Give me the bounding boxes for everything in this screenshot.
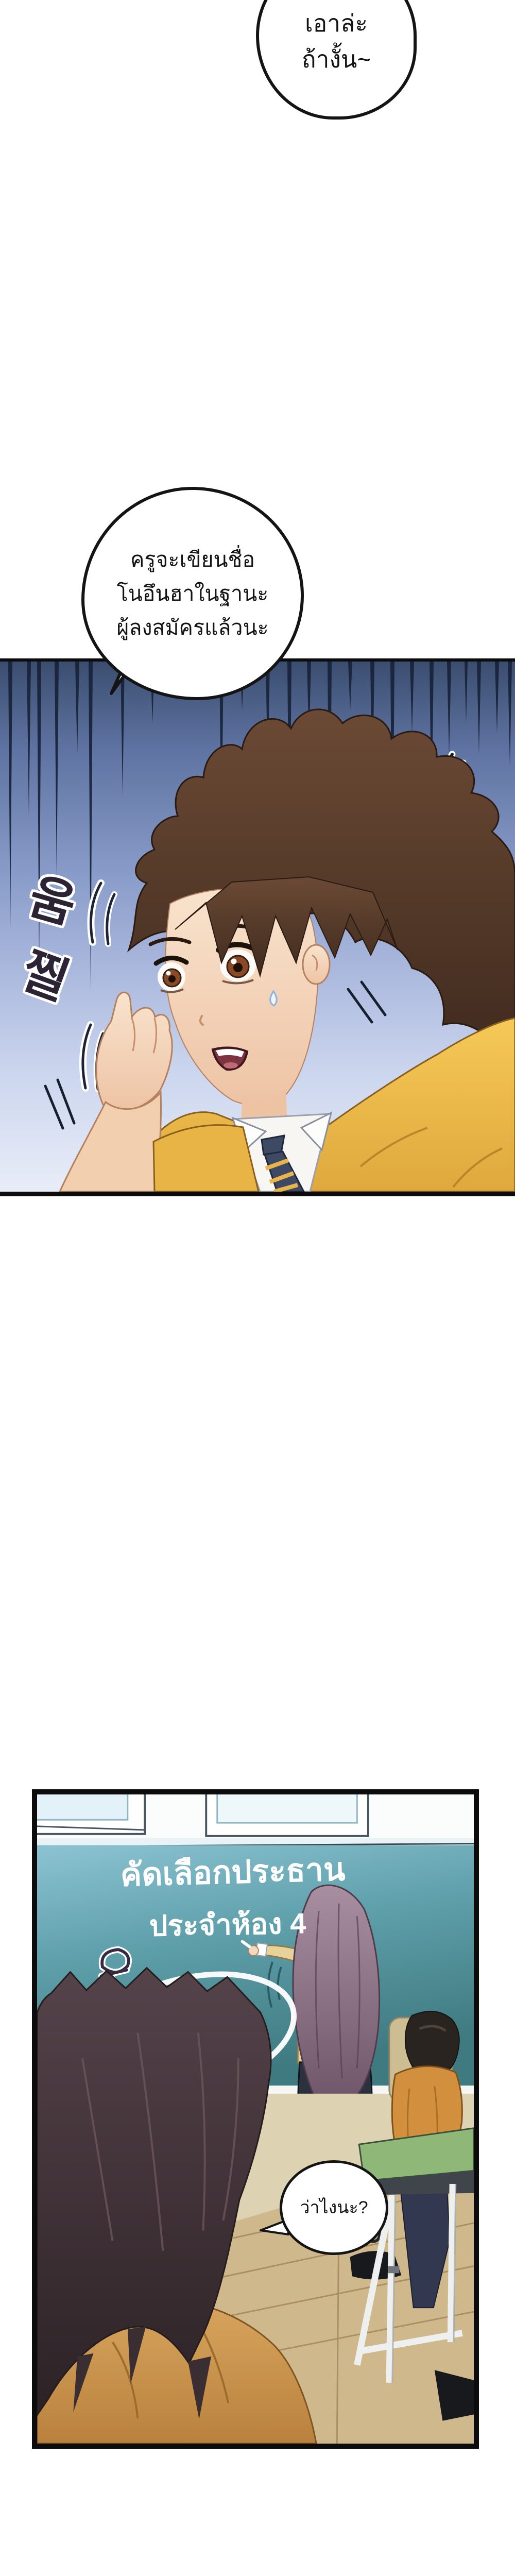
speech-bubble-reaction: ว่าไงนะ? [280, 2160, 388, 2255]
speech-bubble-teacher: ครูจะเขียนชื่อ โนอึนฮาในฐานะ ผู้ลงสมัครแ… [81, 487, 304, 700]
leg-joint [388, 2266, 399, 2273]
speech-text: ผู้ลงสมัครแล้วนะ [84, 611, 301, 645]
boy-forearm [60, 1092, 161, 1192]
boy-character [60, 709, 515, 1192]
speech-bubble-top: เอาล่ะ ถ้างั้น~ [256, 0, 417, 120]
speech-text: เอาล่ะ [259, 5, 414, 41]
webtoon-page: เอาล่ะ ถ้างั้น~ ครูจะเขียนชื่อ โนอึนฮาใน… [0, 0, 515, 2576]
boy-ear [303, 945, 330, 984]
board-text-line2: ประจำห้อง 4 [104, 1900, 351, 1950]
speech-text: ครูจะเขียนชื่อ [84, 543, 301, 577]
panel-classroom: คัดเลือกประธาน ประจำห้อง 4 ว่าไงนะ? [32, 1789, 479, 2449]
student-right-hair [405, 2011, 459, 2074]
speech-text: ว่าไงนะ? [282, 2197, 386, 2218]
speech-text: ถ้างั้น~ [259, 41, 414, 77]
window-left [37, 1794, 145, 1834]
window-middle [206, 1794, 368, 1836]
speech-text: โนอึนฮาในฐานะ [84, 577, 301, 611]
board-text-line1: คัดเลือกประธาน [88, 1843, 377, 1902]
boy-sleeve [153, 1125, 259, 1192]
